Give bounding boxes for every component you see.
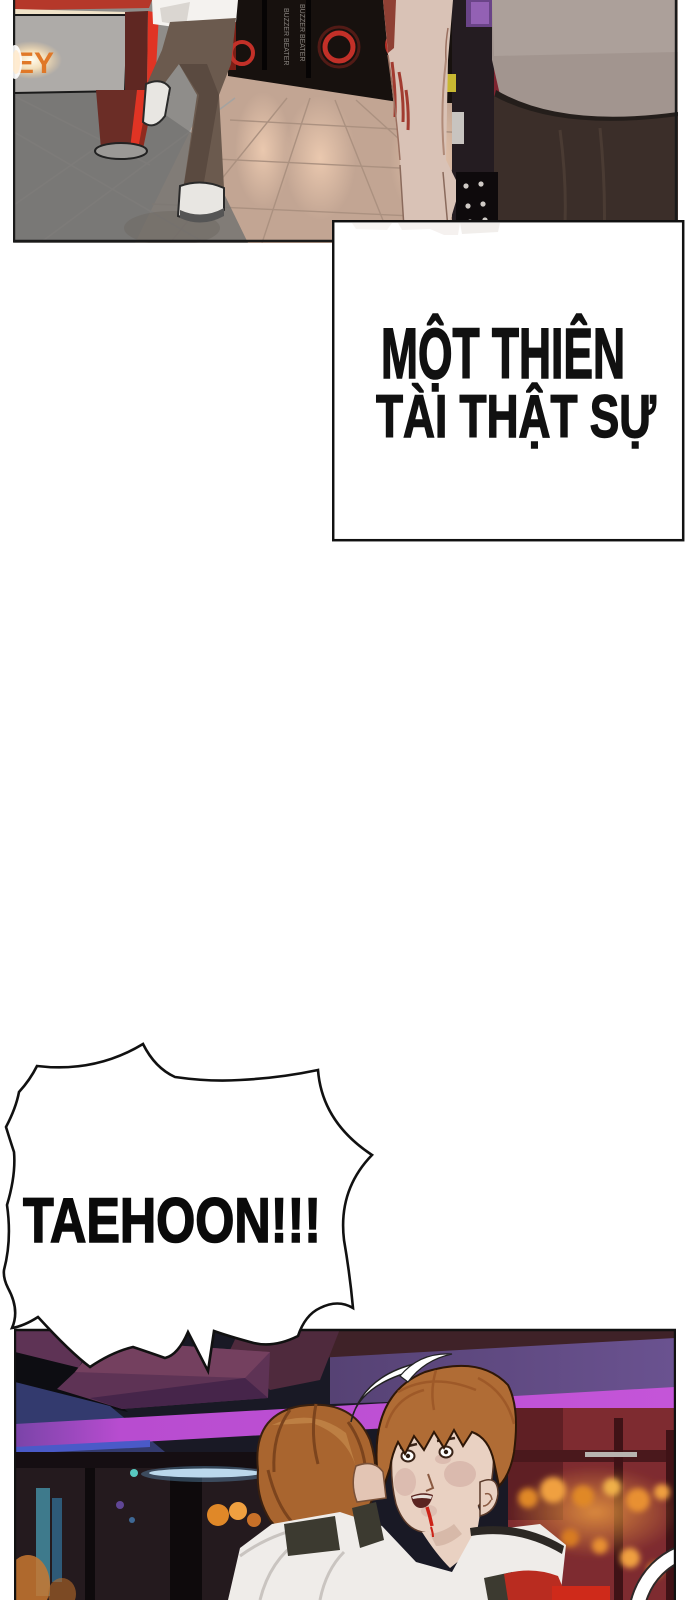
svg-text:BUZZER BEATER: BUZZER BEATER bbox=[282, 8, 289, 65]
svg-text:BUZZER BEATER: BUZZER BEATER bbox=[298, 4, 305, 61]
svg-text:MỘT THIÊN: MỘT THIÊN bbox=[381, 314, 625, 394]
svg-text:TÀI THẬT SỰ: TÀI THẬT SỰ bbox=[376, 383, 656, 450]
svg-text:TAEHOON!!!: TAEHOON!!! bbox=[23, 1186, 321, 1256]
